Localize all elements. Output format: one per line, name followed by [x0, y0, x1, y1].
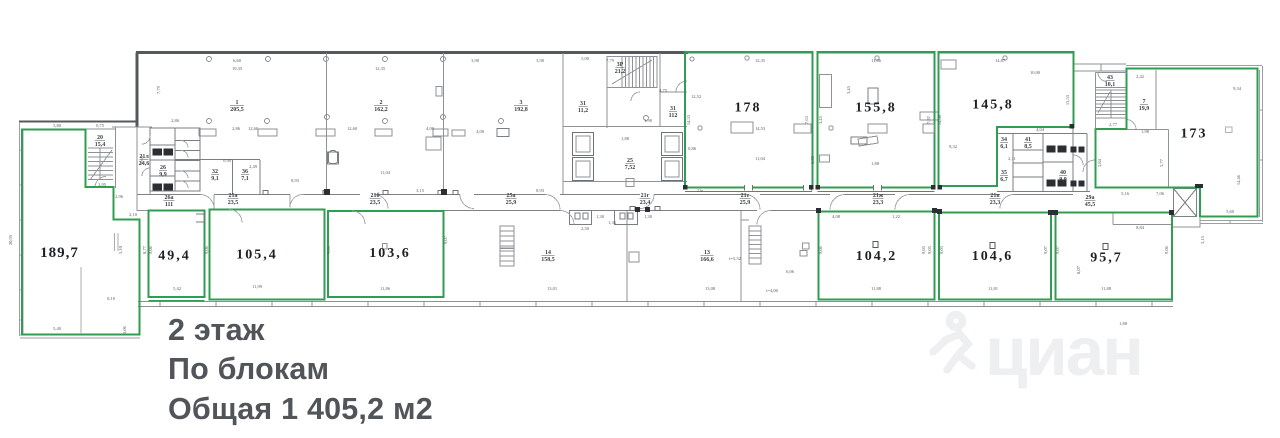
- svg-text:12,60: 12,60: [248, 126, 259, 132]
- svg-text:7,63: 7,63: [804, 115, 810, 124]
- svg-text:9,06: 9,06: [818, 245, 824, 254]
- svg-text:14,53: 14,53: [755, 126, 766, 132]
- svg-text:9,1: 9,1: [211, 176, 219, 182]
- svg-text:21е: 21е: [741, 193, 750, 199]
- svg-text:7: 7: [1143, 99, 1146, 105]
- svg-text:21б: 21б: [371, 192, 380, 199]
- svg-text:205,5: 205,5: [230, 107, 244, 113]
- svg-text:13,08: 13,08: [705, 286, 716, 292]
- svg-text:192,8: 192,8: [514, 107, 528, 113]
- svg-text:11,99: 11,99: [252, 284, 263, 290]
- svg-text:9,9: 9,9: [1059, 177, 1067, 183]
- svg-text:2,86: 2,86: [171, 118, 180, 124]
- svg-text:0,86: 0,86: [688, 146, 697, 152]
- svg-text:7,79: 7,79: [156, 85, 162, 94]
- svg-text:13,53: 13,53: [1065, 94, 1071, 105]
- svg-text:49,4: 49,4: [158, 249, 191, 264]
- svg-text:1,30: 1,30: [644, 214, 653, 220]
- svg-text:8,93: 8,93: [291, 178, 300, 184]
- svg-text:5,16: 5,16: [1121, 191, 1130, 197]
- svg-text:2,11: 2,11: [1008, 156, 1016, 162]
- svg-text:14,53: 14,53: [686, 114, 692, 125]
- svg-text:25: 25: [627, 158, 633, 164]
- svg-text:9,34: 9,34: [1233, 86, 1242, 92]
- svg-text:7,1: 7,1: [241, 176, 249, 182]
- svg-text:9,06: 9,06: [326, 245, 332, 254]
- svg-text:9,07: 9,07: [443, 235, 449, 244]
- svg-text:5,80: 5,80: [53, 123, 62, 129]
- svg-text:11,88: 11,88: [1101, 286, 1112, 292]
- svg-text:1,88: 1,88: [871, 161, 880, 167]
- svg-text:20: 20: [97, 135, 103, 141]
- svg-text:3,15: 3,15: [1200, 235, 1206, 244]
- svg-text:14,06: 14,06: [937, 114, 943, 125]
- svg-text:3,77: 3,77: [1159, 158, 1165, 167]
- svg-text:5,42: 5,42: [173, 286, 181, 292]
- svg-text:14,46: 14,46: [1236, 174, 1242, 185]
- svg-text:21в: 21в: [990, 193, 1000, 199]
- svg-text:32: 32: [212, 169, 218, 175]
- svg-text:2,86: 2,86: [232, 126, 241, 132]
- svg-text:3Р: 3Р: [617, 62, 624, 68]
- svg-text:12,35: 12,35: [755, 58, 766, 64]
- svg-text:2,10: 2,10: [129, 212, 138, 218]
- svg-text:189,7: 189,7: [40, 245, 79, 261]
- svg-text:43: 43: [1107, 75, 1113, 81]
- svg-text:11,81: 11,81: [988, 286, 998, 292]
- svg-text:23,5: 23,5: [228, 200, 239, 206]
- svg-text:6,60: 6,60: [233, 58, 242, 64]
- svg-text:23,4: 23,4: [640, 200, 651, 206]
- svg-text:0,90: 0,90: [223, 158, 232, 164]
- svg-text:0,10: 0,10: [107, 296, 116, 302]
- svg-text:9,05: 9,05: [927, 245, 933, 254]
- svg-text:21е: 21е: [697, 188, 704, 193]
- svg-text:4,08: 4,08: [832, 214, 841, 220]
- svg-text:31: 31: [670, 106, 676, 112]
- svg-text:1,22: 1,22: [892, 214, 900, 220]
- svg-text:12,60: 12,60: [347, 126, 358, 132]
- svg-text:105,4: 105,4: [236, 248, 278, 263]
- svg-text:14,87: 14,87: [995, 58, 1006, 64]
- svg-text:35: 35: [1001, 170, 1007, 176]
- svg-text:173: 173: [1181, 127, 1208, 142]
- svg-text:31: 31: [580, 101, 586, 107]
- svg-text:21ж: 21ж: [873, 193, 884, 199]
- svg-text:155,8: 155,8: [855, 101, 897, 116]
- svg-text:8,32: 8,32: [949, 144, 957, 150]
- svg-text:103,6: 103,6: [369, 246, 411, 261]
- svg-text:112: 112: [669, 113, 678, 119]
- svg-text:t=4,06: t=4,06: [766, 288, 778, 294]
- svg-text:104,6: 104,6: [972, 249, 1014, 264]
- svg-text:3,06: 3,06: [122, 325, 128, 334]
- svg-text:2,42: 2,42: [1136, 74, 1144, 80]
- svg-text:6,1: 6,1: [1000, 144, 1008, 150]
- svg-text:40: 40: [1060, 170, 1066, 176]
- svg-text:21а: 21а: [229, 193, 238, 199]
- svg-text:5,60: 5,60: [1226, 209, 1235, 215]
- svg-text:23,3: 23,3: [990, 200, 1001, 206]
- svg-text:2,49: 2,49: [249, 164, 258, 170]
- svg-text:2,96: 2,96: [115, 194, 124, 200]
- svg-text:5,40: 5,40: [53, 326, 62, 332]
- svg-text:5,00: 5,00: [581, 56, 590, 62]
- svg-text:166,6: 166,6: [700, 257, 714, 263]
- svg-text:158,5: 158,5: [541, 257, 555, 263]
- svg-text:3,90: 3,90: [536, 58, 545, 64]
- svg-text:11,88: 11,88: [871, 286, 882, 292]
- svg-text:11,2: 11,2: [578, 108, 588, 114]
- svg-text:3: 3: [520, 100, 523, 106]
- svg-text:2,77: 2,77: [1109, 122, 1118, 128]
- svg-text:13,01: 13,01: [547, 286, 557, 292]
- svg-text:9,06: 9,06: [148, 245, 154, 254]
- svg-text:12,52: 12,52: [691, 94, 701, 100]
- svg-text:9,07: 9,07: [1055, 245, 1061, 254]
- svg-text:11,66: 11,66: [871, 58, 882, 64]
- svg-text:25а: 25а: [507, 193, 516, 199]
- svg-text:41: 41: [1025, 137, 1031, 143]
- svg-text:4,00: 4,00: [476, 129, 485, 135]
- svg-text:2: 2: [380, 100, 383, 106]
- svg-text:26: 26: [160, 165, 166, 171]
- svg-text:21г: 21г: [641, 193, 650, 199]
- svg-text:8,07: 8,07: [1076, 265, 1082, 274]
- svg-text:10,1: 10,1: [1105, 82, 1116, 88]
- svg-text:3,84: 3,84: [1097, 158, 1103, 167]
- svg-text:45,5: 45,5: [1085, 202, 1096, 208]
- svg-text:19,35: 19,35: [232, 66, 243, 72]
- svg-text:3,92: 3,92: [810, 156, 816, 164]
- svg-text:12,35: 12,35: [375, 66, 386, 72]
- svg-text:3,90: 3,90: [471, 58, 480, 64]
- svg-text:34: 34: [1001, 137, 1007, 143]
- svg-text:36: 36: [242, 169, 248, 175]
- svg-text:9,07: 9,07: [1043, 245, 1049, 254]
- svg-text:3,45: 3,45: [818, 115, 824, 124]
- svg-text:145,8: 145,8: [972, 98, 1014, 113]
- svg-text:23,3: 23,3: [873, 200, 884, 206]
- svg-text:1,88: 1,88: [621, 136, 630, 142]
- svg-text:14: 14: [545, 250, 551, 256]
- svg-text:9,03: 9,03: [939, 245, 945, 254]
- svg-text:0,75: 0,75: [96, 123, 105, 129]
- svg-text:9,9: 9,9: [159, 172, 167, 178]
- svg-text:3,15: 3,15: [416, 188, 425, 194]
- svg-text:11,04: 11,04: [755, 156, 766, 162]
- svg-text:21,2: 21,2: [615, 69, 626, 75]
- svg-text:8,5: 8,5: [1024, 144, 1032, 150]
- svg-text:9,06: 9,06: [1164, 245, 1170, 254]
- svg-text:29а: 29а: [1086, 195, 1095, 201]
- svg-text:4,04: 4,04: [1036, 127, 1045, 133]
- svg-text:23,5: 23,5: [370, 200, 381, 206]
- svg-text:8,84: 8,84: [1136, 225, 1145, 231]
- svg-text:1,98: 1,98: [1141, 129, 1150, 135]
- svg-text:6,7: 6,7: [1000, 177, 1008, 183]
- svg-text:1,36: 1,36: [608, 220, 617, 226]
- svg-text:6,06: 6,06: [786, 269, 795, 275]
- svg-text:15,4: 15,4: [95, 142, 106, 148]
- svg-text:1: 1: [236, 100, 239, 106]
- svg-text:178: 178: [735, 101, 762, 116]
- svg-text:25,9: 25,9: [740, 200, 751, 206]
- svg-text:11,86: 11,86: [380, 286, 391, 292]
- svg-text:26а: 26а: [165, 195, 174, 201]
- svg-text:1,90: 1,90: [644, 118, 653, 124]
- svg-text:8,93: 8,93: [536, 188, 545, 194]
- svg-text:19,9: 19,9: [1139, 106, 1150, 112]
- svg-text:111: 111: [165, 202, 173, 208]
- svg-text:104,2: 104,2: [856, 249, 898, 264]
- svg-text:11,04: 11,04: [380, 170, 391, 176]
- svg-text:t=5,32: t=5,32: [729, 256, 741, 262]
- svg-text:10,00: 10,00: [1030, 70, 1041, 76]
- svg-text:13: 13: [704, 250, 710, 256]
- svg-text:20,95: 20,95: [8, 234, 14, 245]
- svg-text:162,2: 162,2: [374, 107, 388, 113]
- svg-text:95,7: 95,7: [1090, 251, 1123, 266]
- svg-text:3,45: 3,45: [846, 85, 852, 94]
- svg-text:1,30: 1,30: [596, 214, 605, 220]
- svg-text:5,10: 5,10: [118, 245, 124, 254]
- svg-text:25,9: 25,9: [506, 200, 517, 206]
- svg-text:7,52: 7,52: [625, 165, 636, 171]
- svg-text:2,50: 2,50: [581, 226, 590, 232]
- svg-text:7,06: 7,06: [1156, 191, 1165, 197]
